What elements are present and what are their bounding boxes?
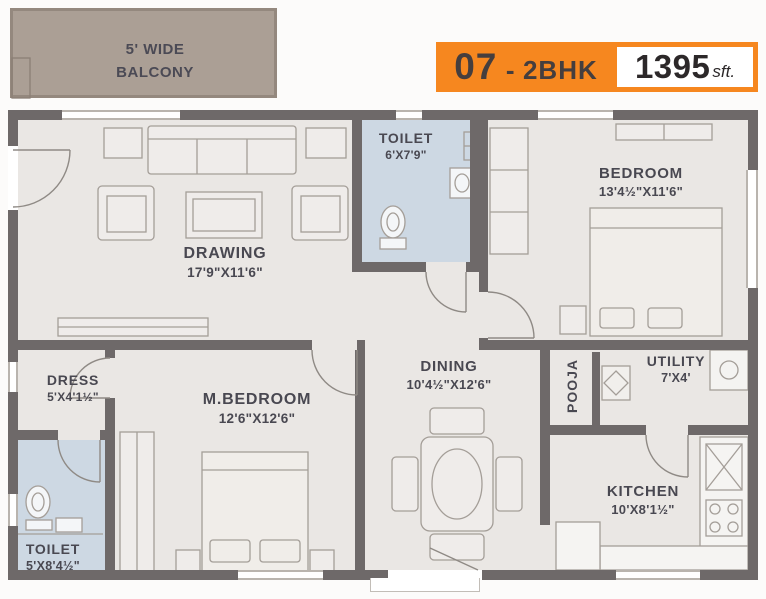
floor-plan: 5' WIDE BALCONY 07 - 2BHK 1395 sft. — [0, 0, 766, 599]
room-dims: 12'6"X12'6" — [203, 411, 312, 426]
room-label-kitchen: KITCHEN 10'X8'1½" — [607, 483, 679, 517]
room-dims: 10'X8'1½" — [607, 502, 679, 517]
room-label-pooja: POOJA — [564, 359, 580, 413]
room-label-utility: UTILITY 7'X4' — [647, 353, 705, 385]
door-arc — [58, 440, 100, 482]
room-label-toilet-top: TOILET 6'X7'9" — [379, 130, 433, 162]
room-name: DINING — [406, 358, 491, 375]
room-name: UTILITY — [647, 353, 705, 369]
room-label-dress: DRESS 5'X4'1½" — [47, 372, 99, 404]
door-arc — [13, 150, 70, 207]
room-label-master-bedroom: M.BEDROOM 12'6"X12'6" — [203, 391, 312, 426]
room-dims: 5'X8'4½" — [26, 559, 80, 573]
room-dims: 17'9"X11'6" — [184, 265, 267, 280]
room-name: BEDROOM — [599, 165, 683, 182]
room-name: DRESS — [47, 372, 99, 388]
entrance-door-leaf — [430, 548, 478, 570]
room-dims: 7'X4' — [647, 371, 705, 385]
room-dims: 10'4½"X12'6" — [406, 377, 491, 392]
door-arc — [426, 272, 466, 312]
room-label-bedroom: BEDROOM 13'4½"X11'6" — [599, 165, 683, 199]
room-name: DRAWING — [184, 245, 267, 263]
room-dims: 5'X4'1½" — [47, 390, 99, 404]
room-label-drawing: DRAWING 17'9"X11'6" — [184, 245, 267, 280]
room-name: TOILET — [379, 130, 433, 146]
room-name: TOILET — [26, 541, 80, 557]
room-name: KITCHEN — [607, 483, 679, 500]
door-arc — [488, 292, 534, 338]
room-dims: 13'4½"X11'6" — [599, 184, 683, 199]
room-name: M.BEDROOM — [203, 391, 312, 409]
room-label-dining: DINING 10'4½"X12'6" — [406, 358, 491, 392]
door-arc — [646, 435, 688, 477]
room-dims: 6'X7'9" — [379, 148, 433, 162]
door-arc — [312, 350, 357, 395]
room-label-toilet-bottom: TOILET 5'X8'4½" — [26, 541, 80, 573]
